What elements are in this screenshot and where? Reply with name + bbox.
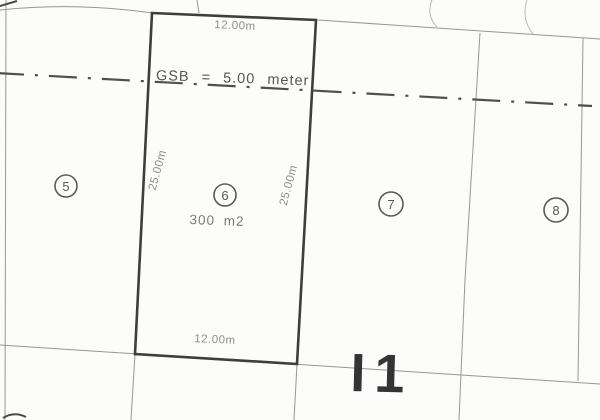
plot5-number: 5 bbox=[62, 179, 69, 194]
site-plan-drawing: 12.00m 12.00m 25.00m 25.00m GSB = 5.00 m… bbox=[0, 0, 600, 420]
site-plan-svg: 12.00m 12.00m 25.00m 25.00m GSB = 5.00 m… bbox=[0, 0, 600, 420]
plot6-area-label: 300 m2 bbox=[189, 212, 245, 229]
plot8-number: 8 bbox=[552, 203, 559, 218]
plot6-top-width-label: 12.00m bbox=[214, 19, 256, 33]
plot7-number: 7 bbox=[387, 197, 394, 212]
paper-background bbox=[0, 0, 600, 420]
block-label: I1 bbox=[350, 343, 415, 405]
plot6-bottom-width-label: 12.00m bbox=[194, 333, 236, 347]
plot6-number: 6 bbox=[221, 188, 228, 203]
